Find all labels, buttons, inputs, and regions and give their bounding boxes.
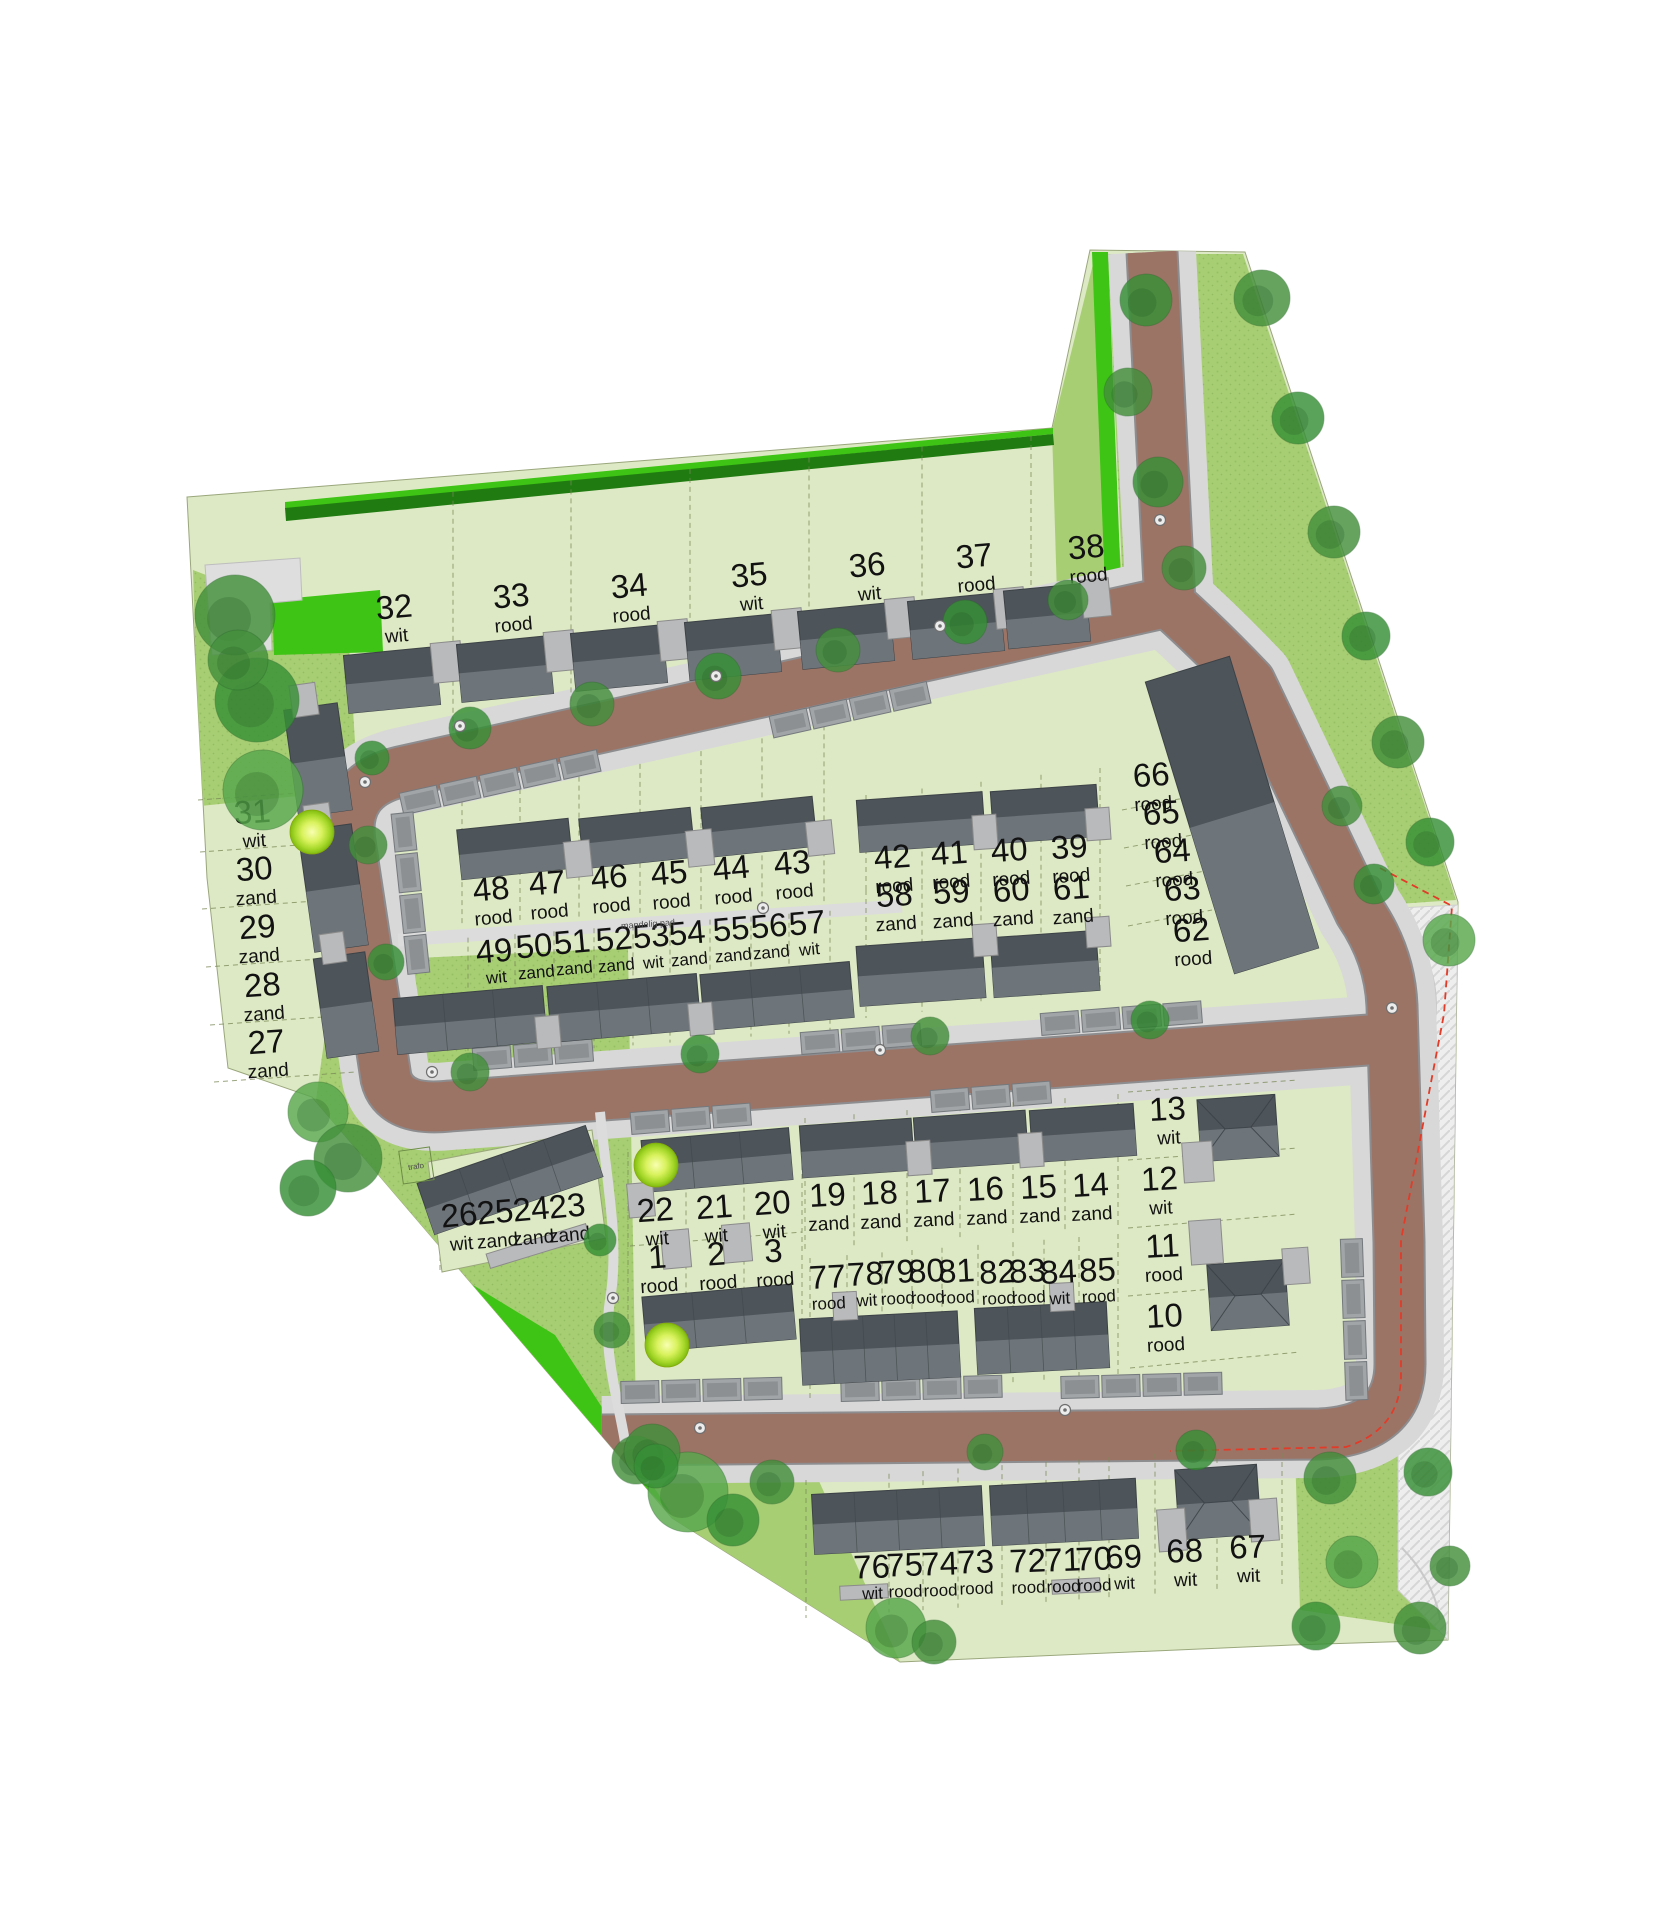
tree-icon [584, 1224, 616, 1256]
plot-color: rood [612, 603, 652, 627]
plot-color: zand [913, 1209, 955, 1232]
plot-label-55: 55zand [711, 909, 753, 967]
plot-number: 49 [474, 931, 514, 971]
plot-number: 61 [1052, 868, 1091, 907]
building [974, 1302, 1109, 1375]
parking-bay [1081, 1007, 1121, 1032]
plot-number: 25 [475, 1192, 515, 1232]
plot-color: wit [644, 1228, 670, 1251]
streetlight-icon [935, 621, 946, 632]
plot-number: 47 [527, 863, 567, 903]
plot-color: wit [1156, 1127, 1182, 1149]
tree-icon [967, 1434, 1003, 1470]
plot-color: rood [714, 885, 754, 909]
plot-number: 75 [886, 1545, 924, 1583]
plot-color: wit [1173, 1570, 1199, 1592]
plot-number: 19 [808, 1175, 847, 1214]
plot-label-19: 19zand [806, 1175, 850, 1236]
plot-color: rood [1134, 793, 1173, 817]
plot-number: 29 [238, 907, 277, 946]
plot-color: wit [1048, 1288, 1071, 1308]
plot-color: zand [243, 1003, 286, 1027]
plot-label-16: 16zand [964, 1169, 1008, 1230]
plot-color: rood [811, 1293, 846, 1314]
plot-color: rood [1146, 1334, 1185, 1357]
plot-color: rood [592, 894, 632, 918]
tree-icon [1048, 580, 1088, 620]
streetlight-icon [711, 671, 722, 682]
glow-marker-icon [645, 1323, 689, 1367]
plot-number: 74 [921, 1544, 959, 1582]
parking-bay [964, 1375, 1003, 1398]
plot-number: 34 [609, 566, 649, 606]
plot-label-29: 29zand [235, 907, 280, 969]
parking-bay [923, 1376, 962, 1399]
plot-color: zand [932, 910, 975, 934]
tree-icon [355, 741, 389, 775]
parking-bay [395, 853, 421, 893]
garage [688, 1002, 715, 1036]
garage [1282, 1247, 1310, 1285]
streetlight-icon [695, 1423, 706, 1434]
tree-icon [208, 630, 268, 690]
tree-icon [943, 600, 987, 644]
garage [1018, 1132, 1044, 1168]
plot-number: 22 [636, 1190, 675, 1229]
tree-icon [1394, 1602, 1446, 1654]
plot-number: 68 [1166, 1531, 1204, 1569]
plot-label-17: 17zand [911, 1171, 955, 1232]
building [799, 1311, 960, 1385]
streetlight-icon [1387, 1003, 1398, 1014]
plot-color: rood [530, 900, 570, 924]
glow-marker-icon [290, 810, 334, 854]
tree-icon [280, 1160, 336, 1216]
glow-marker-icon [634, 1143, 678, 1187]
tree-icon [349, 826, 387, 864]
plot-number: 21 [695, 1187, 734, 1226]
plot-number: 77 [808, 1257, 847, 1296]
plot-color: wit [856, 583, 883, 606]
plot-color: wit [641, 952, 665, 973]
plot-number: 18 [860, 1173, 899, 1212]
plot-color: rood [959, 1578, 994, 1598]
streetlight-icon [875, 1045, 886, 1056]
plot-color: rood [494, 613, 534, 637]
plot-color: rood [775, 880, 815, 904]
plot-label-18: 18zand [858, 1173, 902, 1234]
plot-number: 41 [930, 833, 969, 872]
tree-icon [634, 1444, 678, 1488]
plot-number: 67 [1229, 1527, 1267, 1565]
tree-icon [594, 1312, 630, 1348]
plot-number: 26 [439, 1195, 479, 1235]
building [1029, 1103, 1136, 1162]
plot-color: zand [238, 945, 281, 969]
plot-label-60: 60zand [989, 870, 1034, 932]
plot-label-61: 61zand [1049, 868, 1094, 930]
plot-label-50: 50zand [514, 926, 556, 984]
garage [685, 829, 715, 868]
plot-number: 45 [649, 853, 689, 893]
plot-color: zand [808, 1213, 850, 1236]
plot-number: 14 [1071, 1165, 1110, 1204]
tree-icon [750, 1460, 794, 1504]
plot-label-74: 74rood [921, 1544, 960, 1600]
parking-bay [1061, 1376, 1100, 1399]
site-plan-map: 1rood2rood3rood10rood11rood12wit13wit14z… [0, 0, 1680, 1920]
plot-number: 39 [1050, 827, 1089, 866]
plot-color: rood [1011, 1577, 1046, 1597]
plot-number: 48 [471, 869, 511, 909]
plot-label-71: 71rood [1044, 1540, 1083, 1596]
plot-label-25: 25zand [473, 1191, 519, 1253]
garage [1085, 807, 1111, 841]
plot-label-44: 44rood [710, 847, 753, 909]
tree-icon [1234, 270, 1290, 326]
plot-number: 44 [711, 848, 751, 888]
tree-icon [1162, 546, 1206, 590]
tree-icon [223, 750, 303, 830]
plot-color: zand [476, 1229, 519, 1254]
streetlight-icon [427, 1067, 438, 1078]
tree-icon [1354, 864, 1394, 904]
plot-number: 46 [589, 857, 629, 897]
tree-icon [1120, 274, 1172, 326]
plot-color: rood [1046, 1576, 1081, 1596]
plot-number: 50 [514, 926, 554, 966]
plot-number: 59 [932, 872, 971, 911]
building [856, 938, 986, 1007]
streetlight-icon [608, 1293, 619, 1304]
plot-label-11: 11rood [1142, 1226, 1183, 1287]
plot-label-46: 46rood [588, 856, 631, 918]
plot-label-75: 75rood [886, 1545, 925, 1601]
tree-icon [1404, 1448, 1452, 1496]
plot-number: 30 [235, 849, 274, 888]
parking-bay [1102, 1374, 1141, 1397]
garage [805, 820, 834, 857]
parking-bay [671, 1106, 711, 1131]
tree-icon [1131, 1001, 1169, 1039]
plot-number: 10 [1145, 1296, 1184, 1335]
parking-bay [1012, 1081, 1052, 1106]
plot-color: rood [474, 906, 514, 930]
plot-color: zand [992, 908, 1035, 932]
tree-icon [1104, 368, 1152, 416]
plot-color: rood [1155, 869, 1194, 893]
plot-color: rood [756, 1269, 795, 1293]
tree-icon [707, 1494, 759, 1546]
plot-number: 28 [243, 965, 282, 1004]
tree-icon [368, 944, 404, 980]
plot-number: 72 [1009, 1541, 1047, 1579]
plot-color: zand [247, 1060, 290, 1084]
plot-number: 57 [787, 903, 827, 943]
plot-label-59: 59zand [929, 872, 974, 934]
tree-icon [1176, 1430, 1216, 1470]
plot-label-33: 33rood [490, 575, 533, 637]
plot-color: wit [703, 1225, 729, 1248]
plot-number: 66 [1132, 755, 1171, 794]
plot-number: 33 [491, 576, 531, 616]
plot-label-81: 81rood [937, 1251, 977, 1308]
plot-number: 81 [937, 1251, 976, 1290]
plot-color: wit [761, 1221, 787, 1244]
garage [1182, 1141, 1215, 1183]
plot-number: 73 [957, 1542, 995, 1580]
plot-label-77: 77rood [808, 1257, 848, 1314]
plot-number: 42 [873, 837, 912, 876]
plot-label-72: 72rood [1009, 1541, 1048, 1597]
tree-icon [1326, 1536, 1378, 1588]
parking-bay [703, 1378, 742, 1401]
plot-number: 17 [913, 1171, 952, 1210]
plot-color: wit [1113, 1574, 1136, 1594]
tree-icon [1430, 1546, 1470, 1586]
plot-color: rood [923, 1580, 958, 1600]
plot-label-15: 15zand [1017, 1167, 1061, 1228]
streetlight-icon [1155, 515, 1166, 526]
plot-label-38: 38rood [1065, 526, 1108, 588]
tree-icon [911, 1017, 949, 1055]
plot-color: rood [940, 1287, 975, 1308]
plot-number: 36 [847, 545, 887, 585]
plot-label-58: 58zand [872, 875, 917, 937]
parking-bay [930, 1088, 970, 1113]
parking-bay [971, 1084, 1011, 1109]
plot-color: zand [597, 954, 635, 976]
plot-label-66: 66rood [1131, 755, 1173, 817]
building [456, 636, 553, 703]
plot-number: 40 [990, 830, 1029, 869]
plot-number: 24 [511, 1189, 551, 1229]
plot-color: zand [670, 948, 708, 970]
streetlight-icon [455, 721, 466, 732]
plot-number: 27 [247, 1022, 286, 1061]
parking-bay [1342, 1280, 1365, 1319]
plot-color: wit [738, 593, 765, 616]
parking-bay [662, 1379, 701, 1402]
plot-number: 23 [547, 1186, 587, 1226]
parking-bay [1040, 1011, 1080, 1036]
plot-color: rood [1144, 831, 1183, 855]
streetlight-icon [360, 777, 371, 788]
plot-color: wit [797, 939, 821, 960]
parking-bay [391, 812, 417, 852]
plot-label-45: 45rood [648, 852, 691, 914]
parking-bay [404, 934, 430, 974]
plot-label-85: 85rood [1078, 1250, 1118, 1307]
plot-number: 76 [853, 1547, 891, 1585]
garage [1189, 1219, 1224, 1265]
plot-color: zand [517, 961, 555, 983]
plot-color: rood [1077, 1575, 1112, 1595]
parking-bay [621, 1381, 660, 1404]
plot-number: 16 [966, 1169, 1005, 1208]
tree-icon [1133, 457, 1183, 507]
plot-number: 55 [711, 909, 751, 949]
plot-label-37: 37rood [953, 535, 996, 597]
plot-color: zand [860, 1211, 902, 1234]
plot-color: wit [1236, 1566, 1262, 1588]
tree-icon [1304, 1452, 1356, 1504]
plot-color: zand [714, 944, 752, 966]
parking-bay [744, 1377, 783, 1400]
plot-color: rood [1174, 948, 1213, 972]
tree-icon [912, 1620, 956, 1664]
plot-color: zand [235, 887, 278, 911]
plot-number: 60 [992, 870, 1031, 909]
plot-color: zand [966, 1207, 1008, 1230]
garage [319, 931, 347, 964]
plot-number: 43 [772, 843, 812, 883]
plot-number: 13 [1148, 1089, 1187, 1128]
tree-icon [1322, 786, 1362, 826]
plot-color: wit [383, 625, 410, 648]
parking-bay [1345, 1362, 1368, 1401]
building [570, 625, 667, 692]
plot-color: rood [699, 1272, 738, 1296]
tree-icon [1406, 818, 1454, 866]
plot-color: rood [640, 1275, 679, 1299]
plot-number: 51 [552, 922, 592, 962]
plot-number: 12 [1140, 1159, 1179, 1198]
building [1207, 1259, 1289, 1330]
tree-icon [1292, 1602, 1340, 1650]
tree-icon [681, 1035, 719, 1073]
plot-color: rood [1144, 1264, 1183, 1287]
plot-number: 58 [875, 875, 914, 914]
plot-number: 71 [1044, 1540, 1082, 1578]
parking-bay [400, 894, 426, 934]
building [799, 1118, 914, 1178]
tree-icon [1423, 914, 1475, 966]
plot-number: 38 [1066, 527, 1106, 567]
plot-color: wit [855, 1290, 878, 1310]
tree-icon [1342, 612, 1390, 660]
plot-number: 56 [749, 906, 789, 946]
garage [535, 1015, 562, 1049]
plot-color: rood [957, 573, 997, 597]
tree-icon [1308, 506, 1360, 558]
tree-icon [451, 1053, 489, 1091]
parking-bay [1343, 1321, 1366, 1360]
parking-bay [1143, 1373, 1182, 1396]
plot-label-47: 47rood [526, 862, 569, 924]
plot-number: 84 [1039, 1252, 1078, 1291]
plot-color: zand [875, 913, 918, 937]
plot-label-30: 30zand [232, 849, 277, 911]
plot-color: zand [1071, 1203, 1113, 1226]
parking-bay [712, 1103, 752, 1128]
plot-label-14: 14zand [1069, 1165, 1113, 1226]
plot-color: zand [1019, 1205, 1061, 1228]
plot-color: wit [241, 830, 267, 853]
site-plan-screenshot: { "map": { "annotations": { "shared_path… [0, 0, 1680, 1920]
plot-label-28: 28zand [240, 965, 285, 1027]
plot-number: 20 [753, 1183, 792, 1222]
tree-icon [1272, 392, 1324, 444]
streetlight-icon [758, 903, 769, 914]
plot-color: wit [448, 1233, 475, 1256]
plot-color: wit [1148, 1197, 1174, 1219]
plot-color: zand [752, 941, 790, 963]
parking-bay [1340, 1239, 1363, 1278]
parking-bay [1184, 1372, 1223, 1395]
building [343, 647, 440, 714]
plot-number: 15 [1019, 1167, 1058, 1206]
parking-bay [800, 1030, 840, 1055]
plot-color: wit [484, 967, 508, 988]
plot-number: 32 [374, 587, 414, 627]
plot-label-48: 48rood [470, 868, 513, 930]
building [990, 1478, 1139, 1546]
tree-icon [1372, 716, 1424, 768]
plot-label-51: 51zand [552, 922, 594, 980]
garage [906, 1140, 932, 1176]
plot-number: 35 [729, 555, 769, 595]
plot-label-73: 73rood [957, 1542, 996, 1598]
parking-bay [630, 1110, 670, 1135]
plot-label-27: 27zand [244, 1022, 289, 1084]
streetlight-icon [1060, 1405, 1071, 1416]
plot-label-43: 43rood [771, 842, 814, 904]
plot-label-34: 34rood [608, 565, 651, 627]
plot-color: zand [555, 957, 593, 979]
building [990, 930, 1100, 997]
plot-color: rood [1165, 907, 1204, 931]
plot-color: rood [1081, 1286, 1116, 1307]
plot-label-10: 10rood [1144, 1296, 1185, 1357]
tree-icon [816, 628, 860, 672]
plot-color: rood [652, 890, 692, 914]
plot-color: wit [861, 1584, 884, 1604]
plot-number: 37 [954, 536, 994, 576]
plot-label-56: 56zand [749, 906, 791, 964]
plot-number: 85 [1078, 1250, 1117, 1289]
tree-icon [570, 682, 614, 726]
plot-number: 11 [1144, 1226, 1180, 1265]
plot-color: zand [1052, 906, 1095, 930]
